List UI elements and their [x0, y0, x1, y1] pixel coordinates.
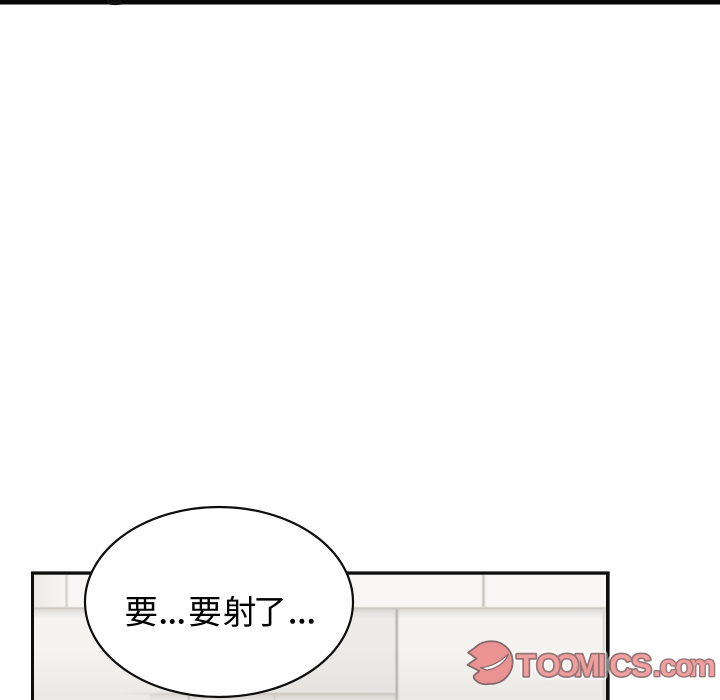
svg-text:T: T	[517, 647, 536, 683]
svg-text:O: O	[536, 647, 561, 683]
svg-text:C: C	[610, 647, 633, 683]
svg-text:c: c	[660, 649, 677, 683]
svg-text:o: o	[675, 649, 694, 683]
svg-text:.: .	[653, 649, 661, 683]
svg-text:S: S	[631, 647, 652, 683]
